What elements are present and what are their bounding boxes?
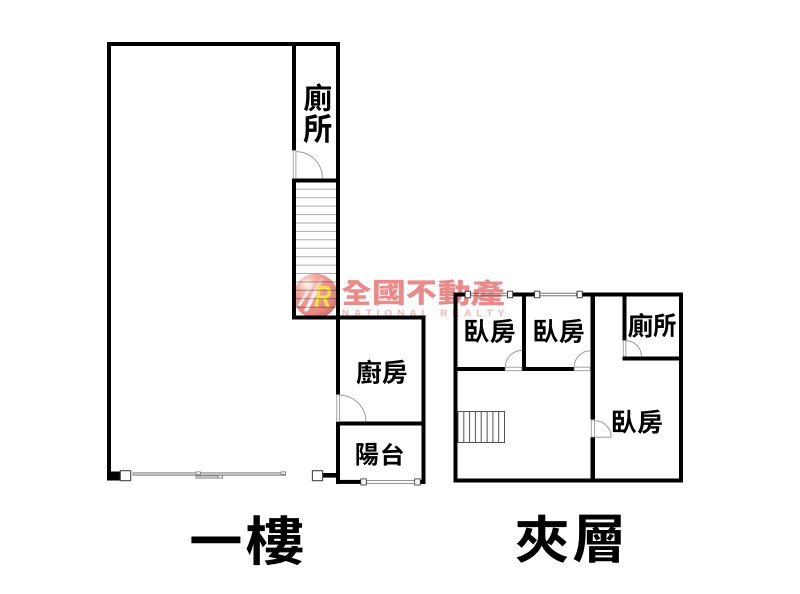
svg-text:R: R [314, 279, 331, 314]
